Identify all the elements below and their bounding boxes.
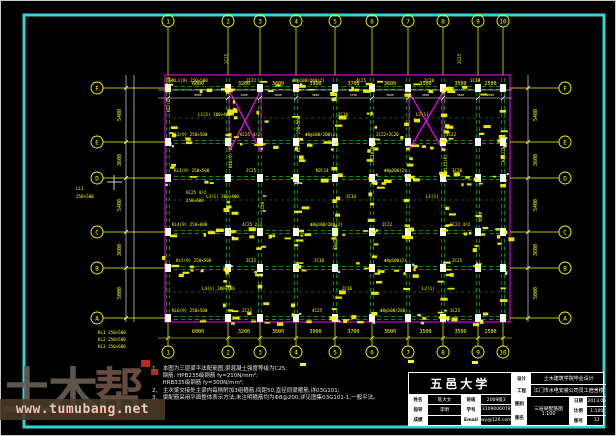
annotation-speckle xyxy=(305,233,312,236)
annotation-speckle xyxy=(363,90,370,93)
annotation-speckle xyxy=(405,224,410,227)
detail-speckle xyxy=(375,183,377,185)
annotation-speckle xyxy=(407,228,414,232)
beam-annotation: L3(1) 200×400 xyxy=(206,194,239,199)
annotation-speckle xyxy=(171,265,179,267)
beam-annotation: 4C25 2/2 xyxy=(242,222,263,227)
detail-speckle xyxy=(166,87,168,89)
beam-annotation: KL3(9) 250×500 xyxy=(174,168,210,173)
meta-value: 2013.06 xyxy=(587,397,606,406)
beam-annotation: 2C22+2C20 xyxy=(376,132,399,137)
project-name: 江门市水电安装公司员工宿舍楼 xyxy=(531,385,606,396)
dimension-text: 3600 xyxy=(117,244,123,256)
annotation-speckle xyxy=(343,319,349,321)
meta-label: 日期 xyxy=(570,397,587,406)
annotation-speckle xyxy=(378,270,385,273)
axis-bubble-label: D xyxy=(95,176,99,183)
detail-speckle xyxy=(376,174,378,176)
annotation-speckle xyxy=(447,224,453,226)
annotation-speckle xyxy=(411,145,419,148)
annotation-speckle xyxy=(301,235,303,237)
annotation-speckle xyxy=(375,126,377,129)
drawing-name-label: 图名 xyxy=(512,412,526,426)
annotation-speckle xyxy=(210,182,214,184)
annotation-speckle xyxy=(473,323,479,326)
meta-row: 比例 1:100 xyxy=(570,407,606,417)
beam-annotation: 250×600 xyxy=(186,198,204,203)
detail-speckle xyxy=(479,263,481,265)
annotation-speckle xyxy=(481,234,486,236)
annotation-speckle xyxy=(462,86,467,89)
annotation-speckle xyxy=(439,316,447,319)
annotation-speckle xyxy=(367,113,370,115)
beam-annotation: 3C25 xyxy=(450,308,461,313)
annotation-speckle xyxy=(364,268,372,270)
beam-annotation: KL3 250×600 xyxy=(98,344,126,349)
drawing-type-label: 图别 xyxy=(512,397,526,412)
annotation-speckle xyxy=(484,125,491,128)
annotation-speckle xyxy=(204,181,208,184)
annotation-speckle xyxy=(226,134,231,136)
meta-row: 日期 2013.06 xyxy=(570,397,606,407)
annotation-speckle xyxy=(263,302,269,305)
column-block xyxy=(500,264,506,272)
title-block: 五邑大学 姓名 陈大文 班级 2009级3 指导 李明 学号 310900607… xyxy=(408,372,604,426)
axis-bubble-label: F xyxy=(563,86,567,93)
beam-annotation: Φ8@100/200(2) xyxy=(292,78,325,83)
annotation-speckle xyxy=(208,231,216,234)
annotation-speckle xyxy=(185,137,190,140)
annotation-speckle xyxy=(473,265,480,267)
annotation-speckle xyxy=(294,211,302,213)
annotation-speckle xyxy=(186,142,193,145)
info-value: wy@126.com xyxy=(481,416,511,425)
annotation-speckle xyxy=(171,164,176,167)
annotation-speckle xyxy=(462,183,464,186)
annotation-speckle xyxy=(464,233,468,236)
annotation-speckle xyxy=(442,229,448,231)
info-value: 李明 xyxy=(428,405,462,414)
dimension-text: 5400 xyxy=(533,109,539,121)
annotation-speckle xyxy=(404,199,410,202)
annotation-speckle xyxy=(497,235,500,239)
annotation-speckle xyxy=(405,235,409,238)
annotation-speckle xyxy=(504,231,508,235)
annotation-speckle xyxy=(440,298,447,301)
annotation-speckle xyxy=(351,315,356,319)
watermark-red-accent xyxy=(141,360,150,367)
axis-bubble-label: A xyxy=(563,316,567,323)
detail-speckle xyxy=(165,144,167,146)
column-block xyxy=(257,314,263,322)
annotation-speckle xyxy=(373,139,380,141)
dimension-subtext: 3500 xyxy=(422,93,429,97)
annotation-speckle xyxy=(221,88,227,91)
annotation-speckle xyxy=(229,230,236,233)
annotation-speckle xyxy=(297,89,301,91)
column-block xyxy=(332,84,338,92)
annotation-speckle xyxy=(299,182,302,184)
axis-bubble-label: 6 xyxy=(370,19,374,26)
annotation-speckle xyxy=(226,285,232,287)
detail-speckle xyxy=(299,313,301,315)
info-row: 成绩 Email wy@126.com xyxy=(409,416,511,425)
column-block xyxy=(475,138,481,146)
annotation-speckle xyxy=(498,139,500,143)
cad-drawing-screenshot: 1122334455667788991010AABBCCDDEEFF600060… xyxy=(0,0,616,436)
dimension-text: 3600 xyxy=(384,329,396,335)
dimension-subtext: 3900 xyxy=(312,93,319,97)
annotation-speckle xyxy=(438,281,444,283)
annotation-speckle xyxy=(447,91,455,93)
annotation-speckle xyxy=(357,321,364,324)
beam-annotation: 2C20 xyxy=(424,78,435,83)
axis-bubble-label: E xyxy=(563,140,567,147)
annotation-speckle xyxy=(500,299,508,302)
column-block xyxy=(332,264,338,272)
beam-annotation: L1(1) xyxy=(426,194,439,199)
annotation-speckle xyxy=(231,322,235,324)
dimension-text: 5000 xyxy=(533,287,539,299)
watermark-red-accent xyxy=(151,369,158,375)
info-label: Email xyxy=(462,416,481,425)
annotation-speckle xyxy=(500,184,506,188)
annotation-speckle xyxy=(306,320,311,323)
annotation-speckle xyxy=(268,90,274,92)
annotation-speckle xyxy=(421,322,424,325)
dimension-text: 5400 xyxy=(117,199,123,211)
axis-bubble-label: 9 xyxy=(476,350,480,357)
detail-speckle xyxy=(171,84,173,86)
column-block xyxy=(225,174,231,182)
annotation-speckle xyxy=(260,81,268,83)
annotation-speckle xyxy=(370,112,373,116)
axis-bubble-label: 10 xyxy=(499,19,507,26)
title-block-left: 五邑大学 姓名 陈大文 班级 2009级3 指导 李明 学号 310900607… xyxy=(409,373,512,425)
annotation-speckle xyxy=(438,312,444,314)
drawing-label-column: 图别 图名 xyxy=(512,397,527,425)
annotation-speckle xyxy=(384,180,392,183)
annotation-speckle xyxy=(444,130,449,133)
annotation-speckle xyxy=(374,147,379,150)
annotation-speckle xyxy=(299,159,305,162)
detail-speckle xyxy=(505,143,507,145)
dimension-subtext: 2500 xyxy=(487,93,494,97)
annotation-speckle xyxy=(356,262,360,264)
annotation-speckle xyxy=(254,144,261,146)
annotation-speckle xyxy=(414,267,416,271)
annotation-speckle xyxy=(402,235,405,239)
detail-speckle xyxy=(445,180,447,182)
annotation-speckle xyxy=(332,308,337,310)
dimension-text: 3500 xyxy=(419,329,431,335)
annotation-speckle xyxy=(368,177,371,179)
annotation-speckle xyxy=(336,197,340,201)
column-block xyxy=(293,84,299,92)
annotation-speckle xyxy=(422,317,426,320)
annotation-speckle xyxy=(472,361,478,364)
annotation-speckle xyxy=(190,176,197,178)
annotation-speckle xyxy=(413,178,420,181)
axis-bubble-label: 3 xyxy=(258,19,262,26)
detail-speckle xyxy=(505,137,507,139)
annotation-speckle xyxy=(372,143,375,145)
annotation-speckle xyxy=(307,144,313,147)
beam-annotation: Φ8@100(2) xyxy=(384,258,407,263)
column-block xyxy=(293,228,299,236)
project-label: 工程 xyxy=(512,385,531,396)
dimension-text: 3600 xyxy=(533,244,539,256)
column-block xyxy=(165,314,171,322)
annotation-speckle xyxy=(367,149,370,153)
annotation-speckle xyxy=(172,133,176,137)
annotation-speckle xyxy=(499,135,506,139)
title-block-info-grid: 姓名 陈大文 班级 2009级3 指导 李明 学号 3109006078 成绩 … xyxy=(409,395,511,425)
annotation-speckle xyxy=(324,141,332,144)
dimension-text: 3200 xyxy=(238,329,250,335)
annotation-speckle xyxy=(263,210,266,212)
detail-speckle xyxy=(258,229,260,231)
axis-bubble-label: B xyxy=(95,266,99,273)
annotation-speckle xyxy=(479,133,484,135)
detail-speckle xyxy=(231,265,233,267)
annotation-speckle xyxy=(480,94,487,96)
detail-speckle xyxy=(172,145,174,147)
axis-bubble-label: D xyxy=(563,176,567,183)
annotation-speckle xyxy=(291,303,295,307)
annotation-speckle xyxy=(339,290,346,294)
annotation-speckle xyxy=(332,98,337,102)
annotation-speckle xyxy=(454,172,460,176)
axis-bubble-label: 10 xyxy=(499,350,507,357)
detail-speckle xyxy=(297,141,299,143)
annotation-speckle xyxy=(443,175,449,177)
annotation-speckle xyxy=(223,304,226,308)
annotation-speckle xyxy=(228,309,233,311)
detail-speckle xyxy=(261,148,263,150)
dimension-subtext: 3200 xyxy=(240,93,247,97)
drawing-name: 三层梁配筋图 1:100 xyxy=(527,397,570,425)
annotation-speckle xyxy=(256,247,262,250)
annotation-speckle xyxy=(296,239,304,241)
dimension-text: 3600 xyxy=(384,81,396,87)
annotation-speckle xyxy=(335,214,340,217)
annotation-speckle xyxy=(332,167,338,171)
annotation-speckle xyxy=(377,187,385,189)
annotation-speckle xyxy=(442,148,446,151)
annotation-speckle xyxy=(368,219,375,222)
annotation-speckle xyxy=(295,147,298,151)
info-row: 指导 李明 学号 3109006078 xyxy=(409,405,511,415)
annotation-speckle xyxy=(269,235,272,239)
detail-speckle xyxy=(260,274,262,276)
annotation-speckle xyxy=(377,81,383,83)
detail-speckle xyxy=(300,83,302,85)
annotation-speckle xyxy=(501,130,508,132)
annotation-speckle xyxy=(299,155,304,159)
dimension-text: 3500 xyxy=(454,329,466,335)
annotation-speckle xyxy=(343,320,347,323)
annotation-speckle xyxy=(495,228,500,230)
annotation-speckle xyxy=(224,208,230,212)
detail-speckle xyxy=(169,144,171,146)
annotation-speckle xyxy=(308,89,315,91)
annotation-speckle xyxy=(450,273,454,277)
detail-speckle xyxy=(165,264,167,266)
annotation-speckle xyxy=(299,85,306,88)
annotation-speckle xyxy=(223,280,227,283)
title-block-bottom: 图别 图名 三层梁配筋图 1:100 日期 2013.06 比例 1:100 图… xyxy=(512,397,606,425)
annotation-speckle xyxy=(404,94,411,97)
annotation-speckle xyxy=(409,157,412,160)
beam-annotation: Φ8@100/200 xyxy=(380,308,406,313)
annotation-speckle xyxy=(321,179,329,183)
annotation-speckle xyxy=(296,262,304,264)
annotation-speckle xyxy=(265,120,269,122)
info-value: 3109006078 xyxy=(481,405,511,414)
detail-speckle xyxy=(170,143,172,145)
detail-speckle xyxy=(371,229,373,231)
beam-annotation: KL8(6) 250×500 xyxy=(228,132,233,168)
info-label: 姓名 xyxy=(409,395,428,404)
project-title: 土木建筑学院毕业设计 xyxy=(531,373,606,384)
detail-speckle xyxy=(332,174,334,176)
annotation-speckle xyxy=(372,313,377,316)
info-value: 陈大文 xyxy=(428,395,462,404)
beam-annotation: KL9(6) 250×500 xyxy=(296,116,301,152)
annotation-speckle xyxy=(430,147,434,150)
annotation-speckle xyxy=(334,142,338,146)
annotation-speckle xyxy=(429,90,434,93)
axis-bubble-label: 6 xyxy=(370,350,374,357)
info-label: 班级 xyxy=(462,395,481,404)
beam-annotation: 3C22 xyxy=(246,258,257,263)
annotation-speckle xyxy=(493,176,496,178)
annotation-speckle xyxy=(452,317,458,321)
annotation-speckle xyxy=(191,269,194,271)
annotation-speckle xyxy=(200,89,203,93)
column-block xyxy=(475,84,481,92)
annotation-speckle xyxy=(400,136,403,140)
info-label: 指导 xyxy=(409,405,428,414)
annotation-speckle xyxy=(276,84,281,86)
info-label: 成绩 xyxy=(409,416,428,425)
annotation-speckle xyxy=(227,112,234,115)
annotation-speckle xyxy=(329,316,337,320)
detail-speckle xyxy=(335,138,337,140)
column-block xyxy=(165,174,171,182)
dimension-text: 3600 xyxy=(533,154,539,166)
beam-annotation: KL7(6) 250×500 xyxy=(166,76,171,112)
annotation-speckle xyxy=(263,195,267,197)
axis-bubble-label: 7 xyxy=(406,19,410,26)
dimension-subtext: 3600 xyxy=(274,93,281,97)
axis-bubble-label: C xyxy=(563,230,567,237)
dimension-text: 3900 xyxy=(309,329,321,335)
detail-speckle xyxy=(166,184,168,186)
beam-annotation: KL2 250×500 xyxy=(98,337,126,342)
annotation-speckle xyxy=(261,246,266,248)
column-block xyxy=(225,84,231,92)
detail-speckle xyxy=(504,174,506,176)
annotation-speckle xyxy=(367,159,373,162)
annotation-speckle xyxy=(299,230,304,233)
annotation-speckle xyxy=(330,92,334,94)
annotation-speckle xyxy=(479,183,483,185)
beam-annotation: 4C25 xyxy=(356,78,367,83)
beam-annotation: 2C25 xyxy=(224,53,229,64)
axis-bubble-label: E xyxy=(95,140,99,147)
annotation-speckle xyxy=(475,215,481,217)
annotation-speckle xyxy=(375,273,381,275)
dimension-subtext: 6000 xyxy=(194,93,201,97)
title-block-right: 设计 土木建筑学院毕业设计 工程 江门市水电安装公司员工宿舍楼 图别 图名 三层… xyxy=(512,373,606,425)
detail-speckle xyxy=(478,230,480,232)
axis-bubble-label: 8 xyxy=(441,350,445,357)
beam-annotation: KL5(9) 250×500 xyxy=(176,258,212,263)
annotation-speckle xyxy=(403,272,406,275)
annotation-speckle xyxy=(465,176,470,179)
annotation-speckle xyxy=(265,322,271,324)
meta-value: 1:100 xyxy=(587,407,606,416)
beam-annotation: 6C25 4/2 xyxy=(186,190,207,195)
dimension-text: 3700 xyxy=(347,329,359,335)
annotation-speckle xyxy=(394,270,399,272)
annotation-speckle xyxy=(201,269,203,271)
project-label: 设计 xyxy=(512,373,531,384)
axis-bubble-label: 4 xyxy=(294,350,298,357)
detail-speckle xyxy=(338,271,340,273)
annotation-speckle xyxy=(407,164,413,167)
beam-annotation: L2(1) xyxy=(422,286,435,291)
annotation-speckle xyxy=(483,227,489,229)
info-value xyxy=(428,416,462,425)
detail-speckle xyxy=(412,264,414,266)
beam-annotation: KL1 250×500 xyxy=(98,330,126,335)
column-block xyxy=(225,314,231,322)
annotation-speckle xyxy=(413,274,419,278)
annotation-speckle xyxy=(170,235,177,238)
annotation-speckle xyxy=(247,312,251,315)
axis-bubble-label: 1 xyxy=(166,19,170,26)
beam-annotation: 6C25 4/2 xyxy=(240,132,261,137)
beam-annotation: KL11(6) xyxy=(443,154,448,172)
annotation-speckle xyxy=(200,320,206,322)
meta-row: 图号 12 xyxy=(570,416,606,425)
meta-label: 图号 xyxy=(570,416,587,425)
axis-bubble-label: C xyxy=(95,230,99,237)
annotation-speckle xyxy=(170,167,175,169)
beam-annotation: 2C25 xyxy=(452,258,463,263)
detail-speckle xyxy=(445,139,447,141)
annotation-speckle xyxy=(449,213,456,215)
watermark-band: www.tumubang.net xyxy=(0,399,165,420)
annotation-speckle xyxy=(449,138,454,140)
annotation-speckle xyxy=(190,266,194,269)
annotation-speckle xyxy=(497,243,501,245)
annotation-speckle xyxy=(171,126,178,129)
annotation-speckle xyxy=(444,310,447,312)
detail-speckle xyxy=(165,318,167,320)
annotation-speckle xyxy=(474,178,478,182)
column-block xyxy=(405,84,411,92)
axis-bubble-label: 9 xyxy=(476,19,480,26)
annotation-speckle xyxy=(406,148,410,151)
beam-annotation: 4C25 xyxy=(312,308,323,313)
annotation-speckle xyxy=(335,297,342,299)
annotation-speckle xyxy=(207,89,213,93)
axis-bubble-label: 5 xyxy=(333,19,337,26)
